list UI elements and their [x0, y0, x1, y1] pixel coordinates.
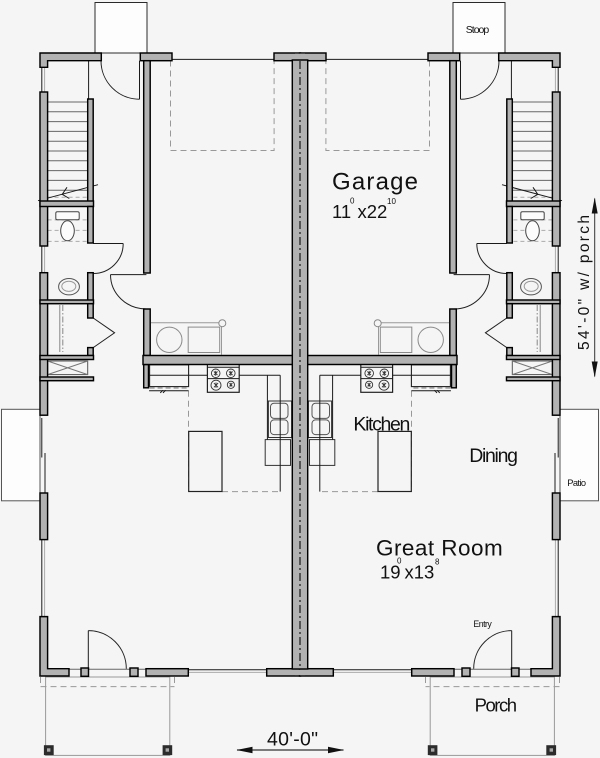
- svg-text:10: 10: [387, 197, 396, 206]
- svg-text:x22: x22: [358, 201, 388, 222]
- svg-text:40'-0": 40'-0": [267, 729, 318, 751]
- svg-text:0: 0: [397, 557, 402, 566]
- svg-text:x13: x13: [405, 561, 435, 582]
- svg-text:Porch: Porch: [475, 695, 517, 716]
- svg-text:8: 8: [435, 558, 440, 567]
- svg-text:Entry: Entry: [473, 619, 492, 629]
- svg-text:0: 0: [350, 197, 355, 206]
- svg-text:Dining: Dining: [469, 445, 518, 467]
- svg-text:Garage: Garage: [332, 168, 418, 195]
- svg-text:Stoop: Stoop: [466, 24, 490, 36]
- svg-text:11: 11: [332, 201, 351, 222]
- svg-text:Kitchen: Kitchen: [353, 414, 410, 436]
- svg-text:Patio: Patio: [567, 478, 586, 488]
